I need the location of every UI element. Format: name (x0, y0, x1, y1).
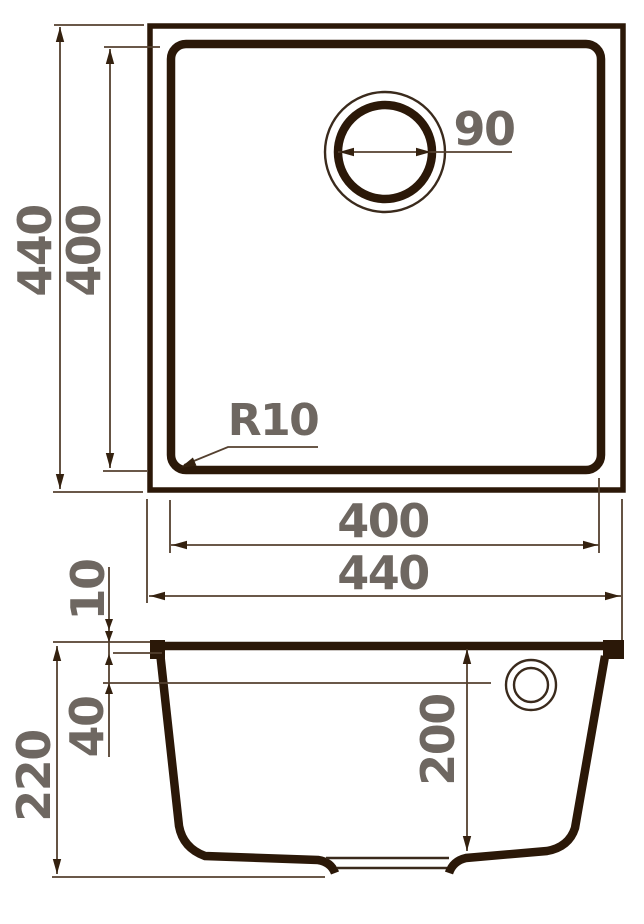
arrow-down-icon (56, 474, 64, 489)
top-view-overall-height-label: 440 (12, 205, 58, 297)
section-overflow-offset-label: 40 (64, 696, 110, 757)
sink-outer-edge (150, 26, 623, 490)
arrow-right-icon (605, 592, 620, 600)
section-left-wall (160, 652, 335, 873)
arrow-down-icon (106, 453, 114, 468)
arrow-up-icon (56, 27, 64, 42)
section-rim-thickness-label: 10 (65, 559, 111, 620)
sink-technical-drawing: 440 400 90 R10 400 440 10 220 40 200 (0, 0, 644, 924)
top-view-inner-width-label: 400 (337, 498, 429, 544)
arrow-down-icon (105, 631, 113, 642)
overflow-hole-inner (514, 668, 548, 702)
arrow-up-icon (463, 649, 471, 664)
arrow-down-icon (463, 836, 471, 851)
corner-radius-leader (184, 447, 318, 465)
arrow-up-icon (105, 683, 113, 694)
top-view-overall-width-label: 440 (337, 550, 429, 596)
corner-radius-label: R10 (228, 399, 319, 443)
arrow-up-icon (53, 646, 61, 661)
arrow-up-icon (106, 49, 114, 64)
drain-diameter-label: 90 (453, 106, 514, 152)
arrow-left-icon (172, 541, 187, 549)
arrow-right-icon (583, 541, 598, 549)
top-view-inner-height-label: 400 (61, 205, 107, 297)
section-right-wall (449, 656, 605, 873)
drawing-linework (0, 0, 644, 924)
arrow-down-icon (53, 859, 61, 874)
arrow-down-icon (105, 619, 113, 630)
arrow-up-icon (105, 654, 113, 665)
section-overall-height-label: 220 (11, 730, 57, 822)
section-rim-right-end (603, 640, 624, 659)
arrow-left-icon (150, 592, 165, 600)
section-bowl-depth-label: 200 (415, 694, 461, 786)
